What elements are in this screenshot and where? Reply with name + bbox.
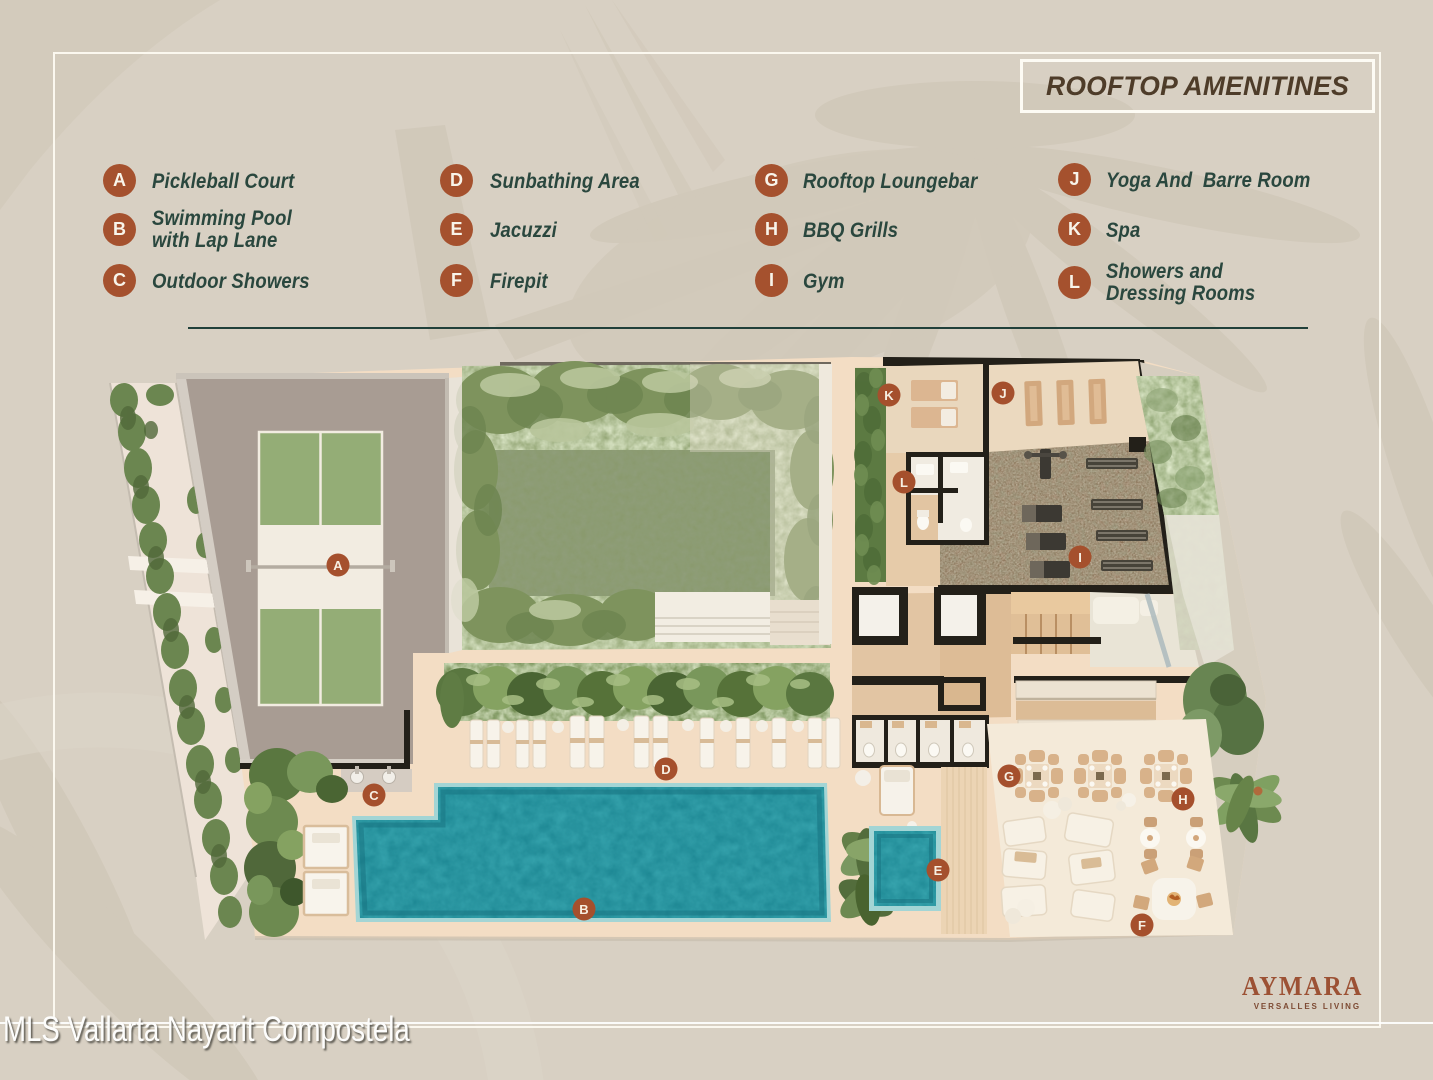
- svg-text:D: D: [661, 762, 670, 777]
- svg-text:J: J: [999, 386, 1006, 401]
- svg-text:F: F: [1138, 918, 1146, 933]
- svg-text:C: C: [369, 788, 379, 803]
- svg-text:I: I: [1078, 550, 1082, 565]
- svg-text:L: L: [900, 475, 908, 490]
- svg-text:B: B: [579, 902, 588, 917]
- svg-text:E: E: [934, 863, 943, 878]
- svg-text:G: G: [1004, 769, 1014, 784]
- svg-text:A: A: [333, 558, 343, 573]
- svg-text:H: H: [1178, 792, 1187, 807]
- svg-text:K: K: [884, 388, 894, 403]
